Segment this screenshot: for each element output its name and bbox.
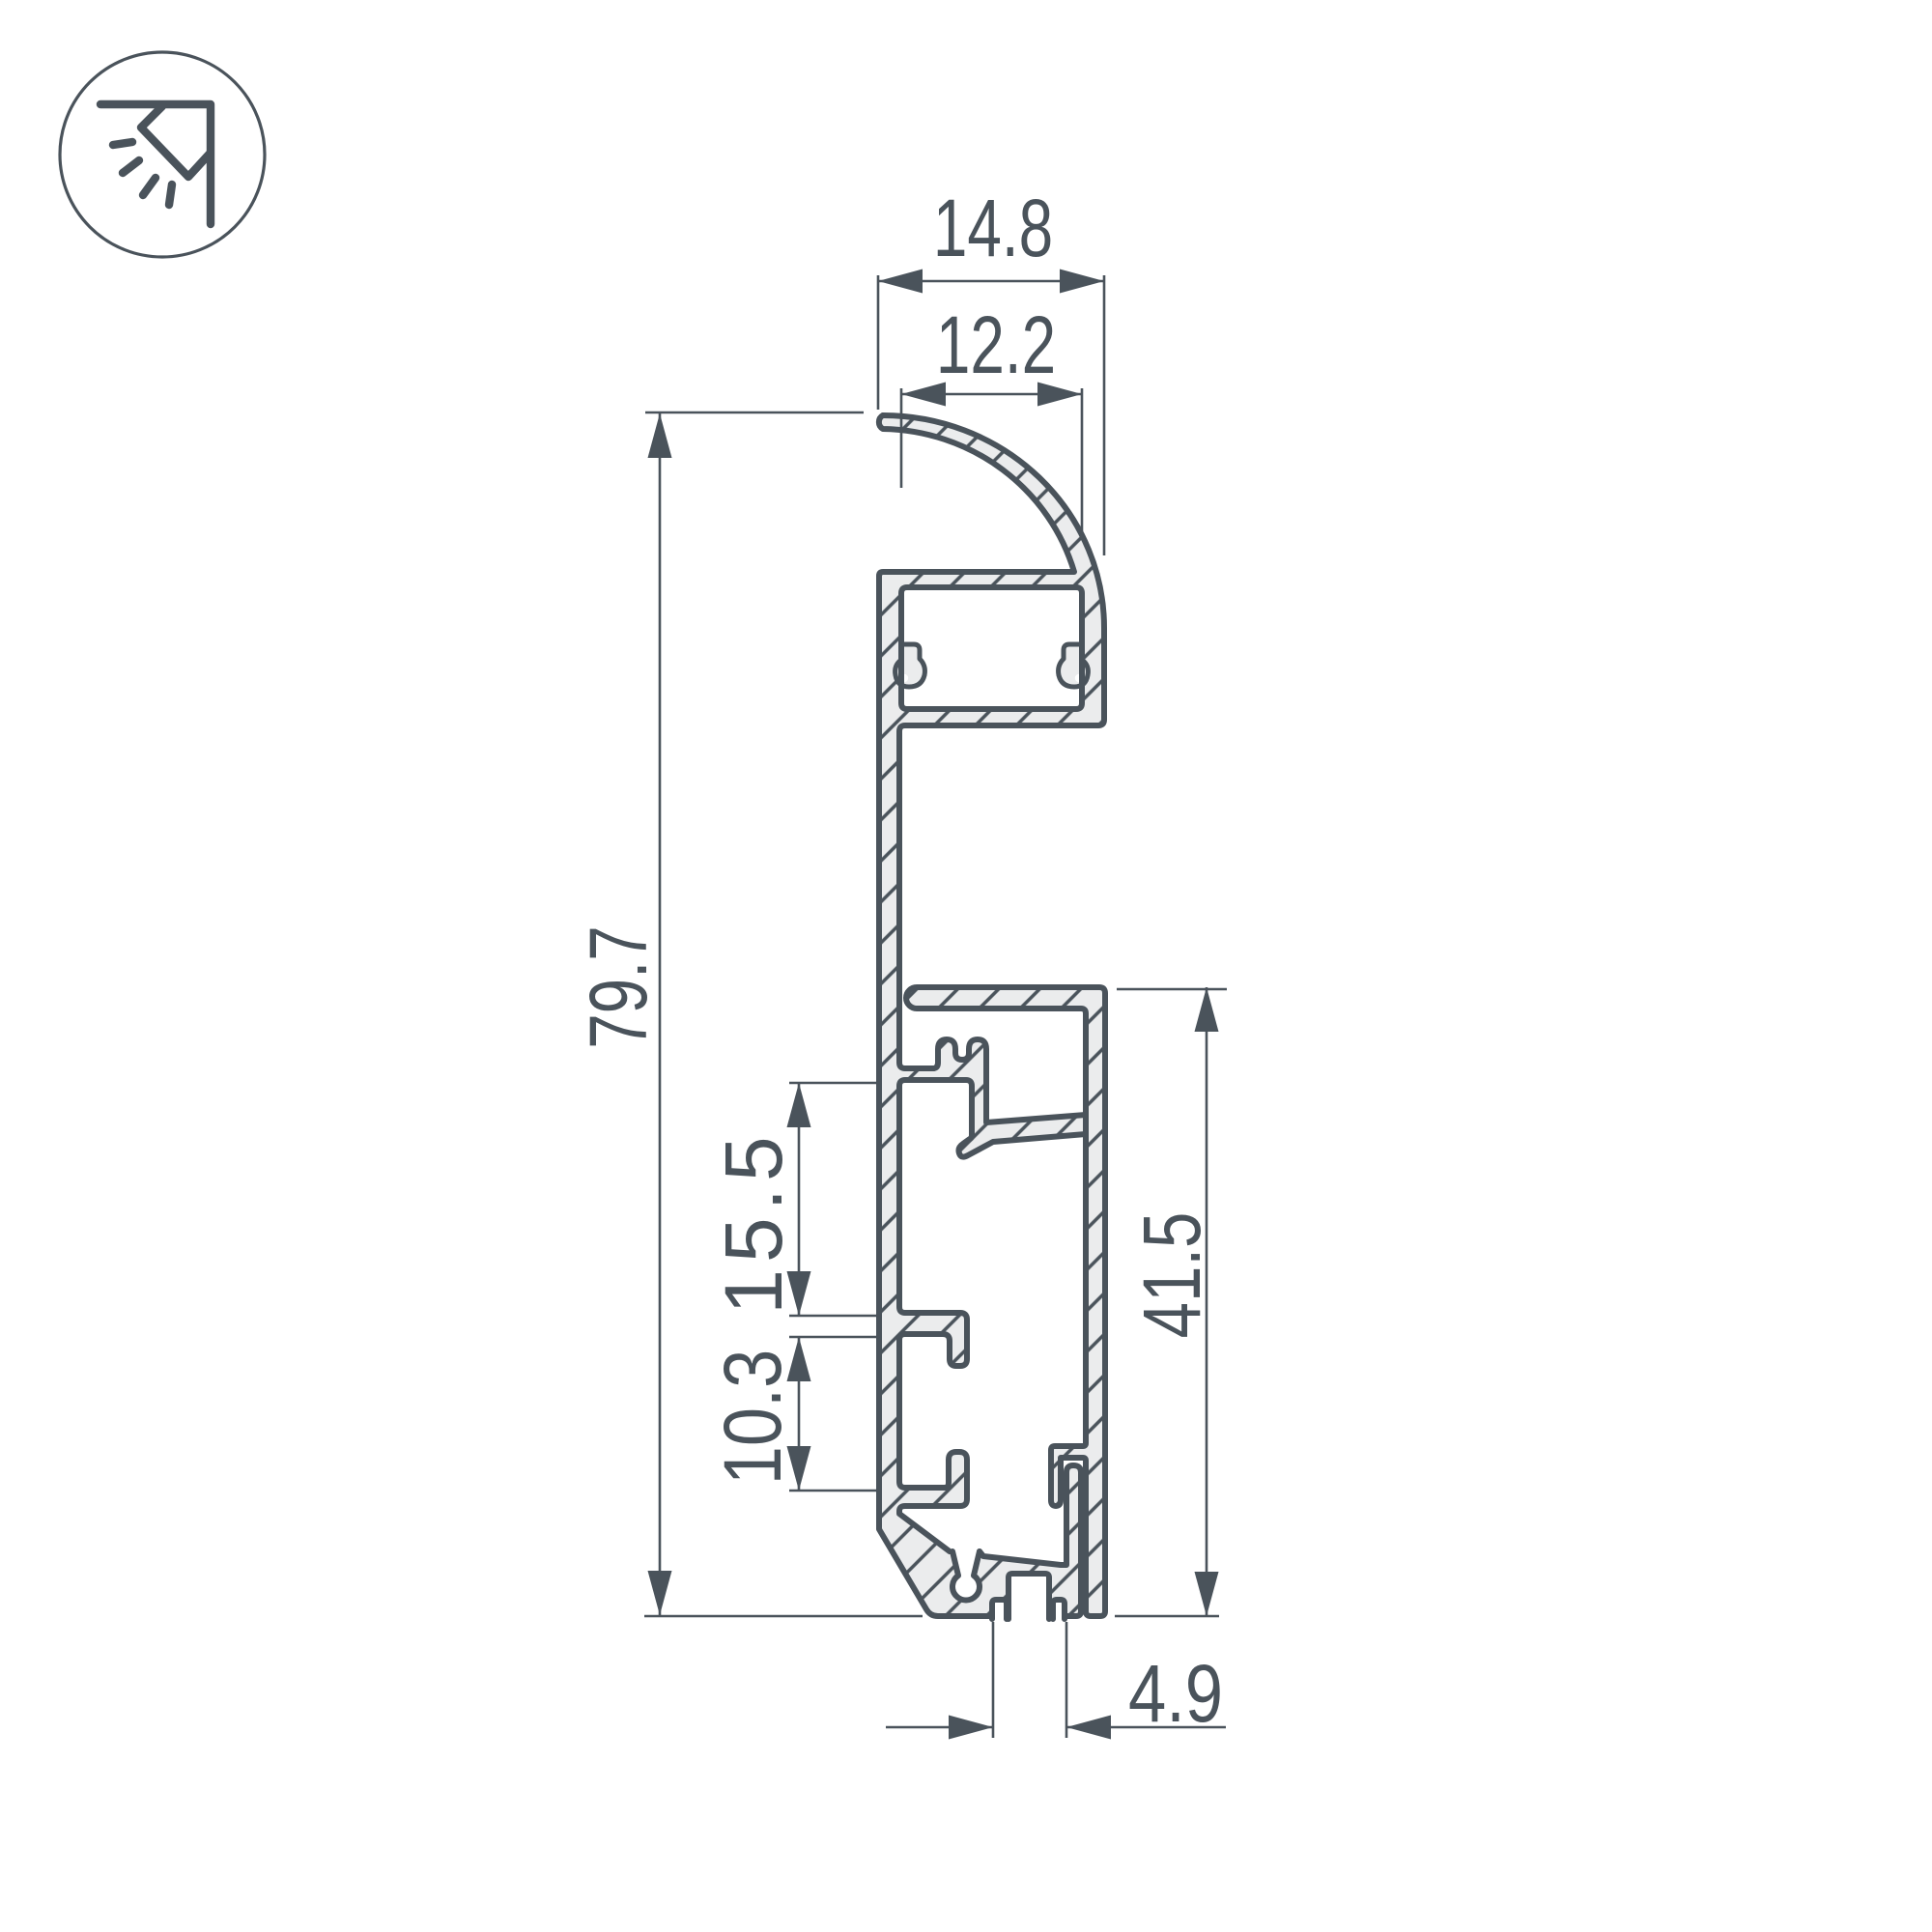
svg-text:10.3: 10.3 bbox=[707, 1350, 798, 1486]
svg-text:15.5: 15.5 bbox=[708, 1129, 799, 1315]
svg-text:79.7: 79.7 bbox=[573, 925, 664, 1049]
svg-text:41.5: 41.5 bbox=[1127, 1212, 1218, 1339]
svg-text:4.9: 4.9 bbox=[1128, 1649, 1223, 1739]
svg-text:12.2: 12.2 bbox=[936, 298, 1056, 390]
svg-text:14.8: 14.8 bbox=[933, 182, 1053, 273]
